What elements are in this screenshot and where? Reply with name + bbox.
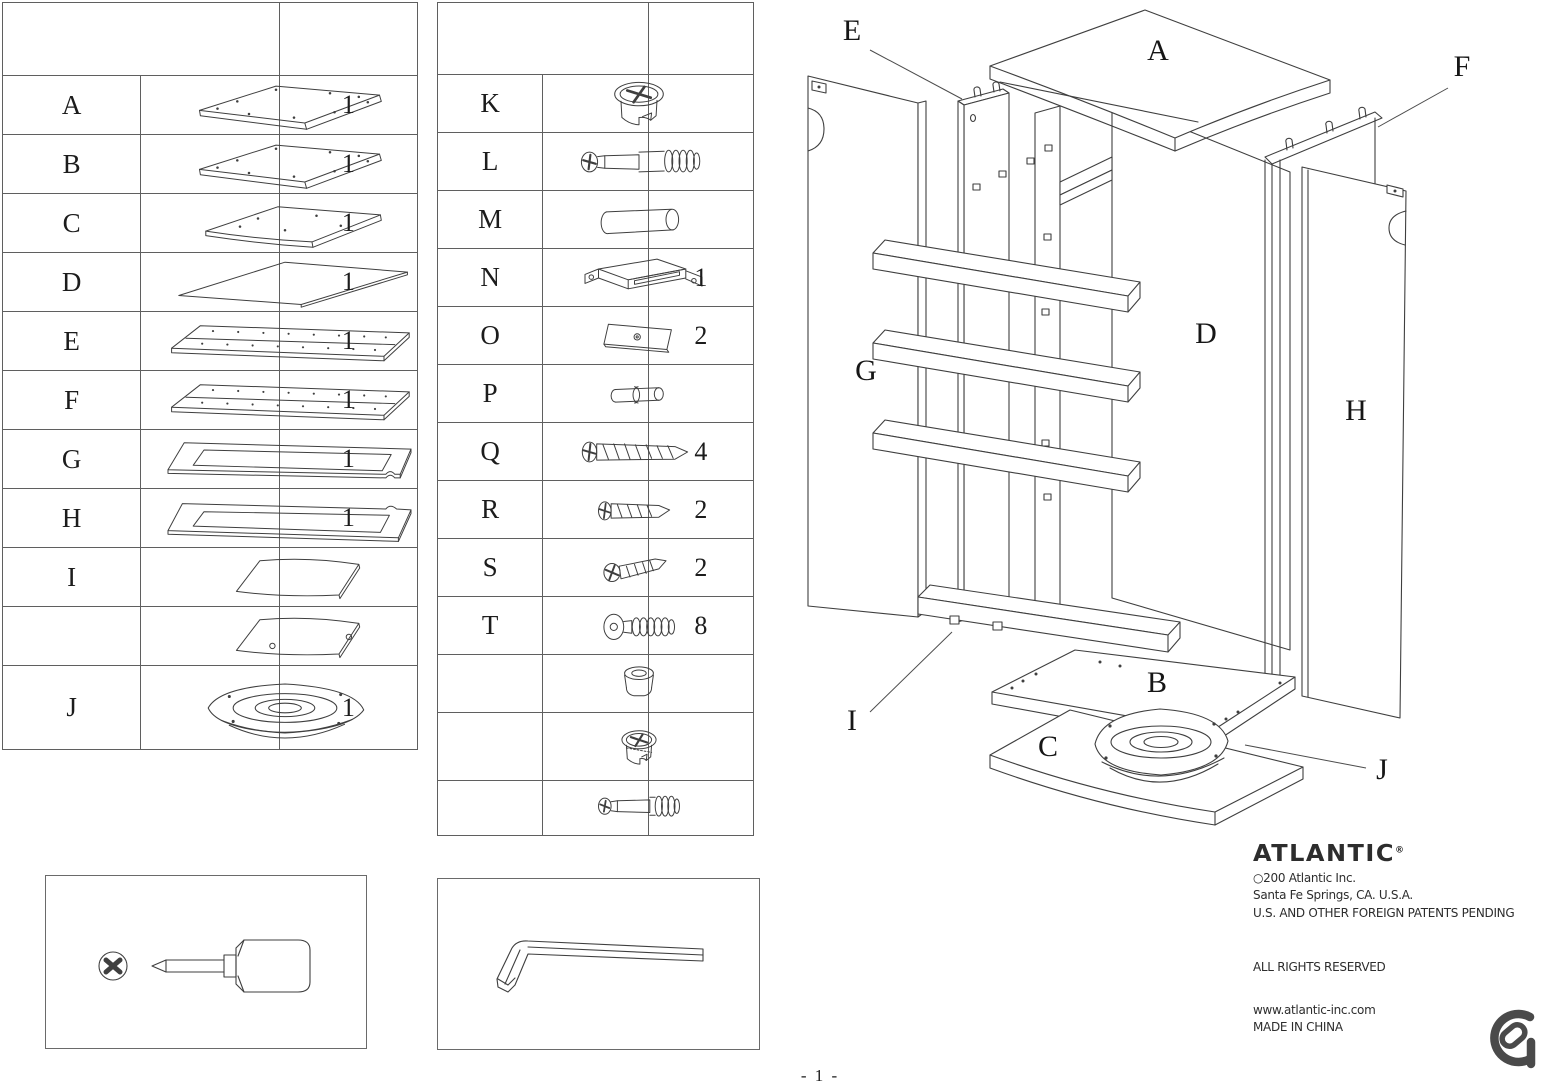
exploded-assembly-diagram: EAFGDHIBCJ [790, 0, 1541, 830]
door-h-right [1302, 167, 1406, 718]
parts-table-header [3, 3, 418, 76]
part-letter: O [438, 307, 543, 365]
part-quantity: 1 [279, 430, 417, 489]
website-line: www.atlantic-inc.com [1253, 1003, 1375, 1017]
part-letter [438, 781, 543, 836]
part-letter: Q [438, 423, 543, 481]
parts-header-cell [3, 3, 280, 76]
part-letter: M [438, 191, 543, 249]
part-illustration [543, 539, 648, 597]
part-quantity [648, 655, 753, 713]
part-illustration [543, 423, 648, 481]
part-letter: K [438, 75, 543, 133]
part-letter: F [3, 371, 141, 430]
part-illustration [141, 194, 279, 253]
part-illustration [543, 249, 648, 307]
part-letter: N [438, 249, 543, 307]
panel-d-back [1112, 100, 1290, 650]
part-letter: B [3, 135, 141, 194]
part-illustration [141, 548, 279, 607]
part-illustration [543, 133, 648, 191]
part-letter: T [438, 597, 543, 655]
part-illustration [543, 713, 648, 781]
table-row [438, 781, 754, 836]
table-row: G 1 [3, 430, 418, 489]
part-letter: H [3, 489, 141, 548]
rights-line: ALL RIGHTS RESERVED [1253, 960, 1386, 974]
table-row: P [438, 365, 754, 423]
part-illustration [141, 253, 279, 312]
table-row: M [438, 191, 754, 249]
parts-list-table: A 1 B 1 C 1 D 1 E 1 F 1 G [2, 2, 418, 750]
table-row: T 8 [438, 597, 754, 655]
branding-block: ATLANTIC® ○200 Atlantic Inc. Santa Fe Sp… [1253, 840, 1541, 868]
table-row: D 1 [3, 253, 418, 312]
part-letter: I [3, 548, 141, 607]
table-row [438, 655, 754, 713]
part-illustration [543, 307, 648, 365]
part-letter: A [3, 76, 141, 135]
part-quantity [648, 713, 753, 781]
registered-trademark-symbol: ® [1395, 846, 1406, 856]
part-letter: E [3, 312, 141, 371]
label-leader-line [870, 50, 962, 99]
part-quantity: 1 [279, 312, 417, 371]
part-quantity: 8 [648, 597, 753, 655]
origin-line: MADE IN CHINA [1253, 1020, 1343, 1034]
part-quantity: 1 [279, 135, 417, 194]
atlantic-logo-text: ATLANTIC [1253, 840, 1395, 867]
part-illustration [543, 781, 648, 836]
part-illustration [141, 371, 279, 430]
part-illustration [141, 76, 279, 135]
part-letter: R [438, 481, 543, 539]
table-row: B 1 [3, 135, 418, 194]
table-row: H 1 [3, 489, 418, 548]
phillips-screwdriver-icon [46, 876, 366, 1048]
part-illustration [141, 666, 279, 750]
copyright-line: ○200 Atlantic Inc. [1253, 871, 1356, 885]
address-line: Santa Fe Springs, CA. U.S.A. [1253, 888, 1413, 902]
table-row: N 1 [438, 249, 754, 307]
table-row: A 1 [3, 76, 418, 135]
diagram-part-label: C [1038, 730, 1058, 763]
diagram-part-label: A [1147, 34, 1169, 67]
part-letter: S [438, 539, 543, 597]
table-row: R 2 [438, 481, 754, 539]
part-letter [438, 655, 543, 713]
part-quantity [279, 548, 417, 607]
diagram-part-label: F [1454, 50, 1471, 83]
table-row: O 2 [438, 307, 754, 365]
part-illustration [543, 191, 648, 249]
assembly-instruction-sheet: { "page": { "number": "- 1 -" }, "parts_… [0, 0, 1541, 1092]
diagram-part-label: D [1195, 317, 1217, 350]
part-quantity [279, 607, 417, 666]
diagram-part-label: H [1345, 394, 1367, 427]
part-illustration [543, 655, 648, 713]
part-letter: D [3, 253, 141, 312]
table-row: Q 4 [438, 423, 754, 481]
diagram-part-label: I [847, 704, 857, 737]
page-number: - 1 - [780, 1066, 860, 1086]
hardware-header-cell [438, 3, 649, 75]
table-row: S 2 [438, 539, 754, 597]
label-leader-line [1378, 88, 1448, 127]
part-quantity: 1 [279, 253, 417, 312]
label-leader-line [870, 632, 952, 712]
atlantic-wordmark: ATLANTIC® [1253, 840, 1541, 867]
part-quantity: 1 [279, 76, 417, 135]
parts-header-qty-cell [279, 3, 417, 76]
table-row: F 1 [3, 371, 418, 430]
diagram-part-label: G [855, 354, 877, 387]
part-quantity: 2 [648, 539, 753, 597]
part-quantity: 2 [648, 481, 753, 539]
part-illustration [141, 489, 279, 548]
hardware-header-qty-cell [648, 3, 753, 75]
part-letter: L [438, 133, 543, 191]
table-row [438, 713, 754, 781]
table-row: J 1 [3, 666, 418, 750]
allen-key-box [437, 878, 760, 1050]
part-illustration [141, 607, 279, 666]
part-quantity: 2 [648, 307, 753, 365]
table-row: C 1 [3, 194, 418, 253]
table-row: L [438, 133, 754, 191]
hardware-table-header [438, 3, 754, 75]
table-row: I [3, 548, 418, 607]
part-letter [438, 713, 543, 781]
part-illustration [543, 75, 648, 133]
diagram-part-label: E [843, 14, 861, 47]
part-quantity [648, 75, 753, 133]
phillips-screwdriver-box [45, 875, 367, 1049]
part-letter: C [3, 194, 141, 253]
part-letter [3, 607, 141, 666]
part-quantity [648, 781, 753, 836]
diagram-part-label: J [1376, 753, 1388, 786]
table-row [3, 607, 418, 666]
part-quantity: 1 [279, 194, 417, 253]
part-letter: P [438, 365, 543, 423]
diagram-part-label: B [1147, 666, 1167, 699]
part-quantity [648, 191, 753, 249]
part-illustration [543, 597, 648, 655]
patents-line: U.S. AND OTHER FOREIGN PATENTS PENDING [1253, 906, 1514, 920]
table-row: E 1 [3, 312, 418, 371]
part-quantity [648, 133, 753, 191]
part-illustration [141, 135, 279, 194]
table-row: K [438, 75, 754, 133]
hardware-list-table: K L M N 1 O 2 P Q [437, 2, 754, 836]
atlantic-a-logo-icon [1475, 1000, 1541, 1090]
allen-key-icon [438, 879, 759, 1049]
part-quantity: 4 [648, 423, 753, 481]
part-quantity: 1 [279, 371, 417, 430]
part-letter: G [3, 430, 141, 489]
part-illustration [543, 365, 648, 423]
small-corner-shelf [1060, 157, 1112, 205]
part-illustration [141, 312, 279, 371]
part-letter: J [3, 666, 141, 750]
part-illustration [141, 430, 279, 489]
part-illustration [543, 481, 648, 539]
